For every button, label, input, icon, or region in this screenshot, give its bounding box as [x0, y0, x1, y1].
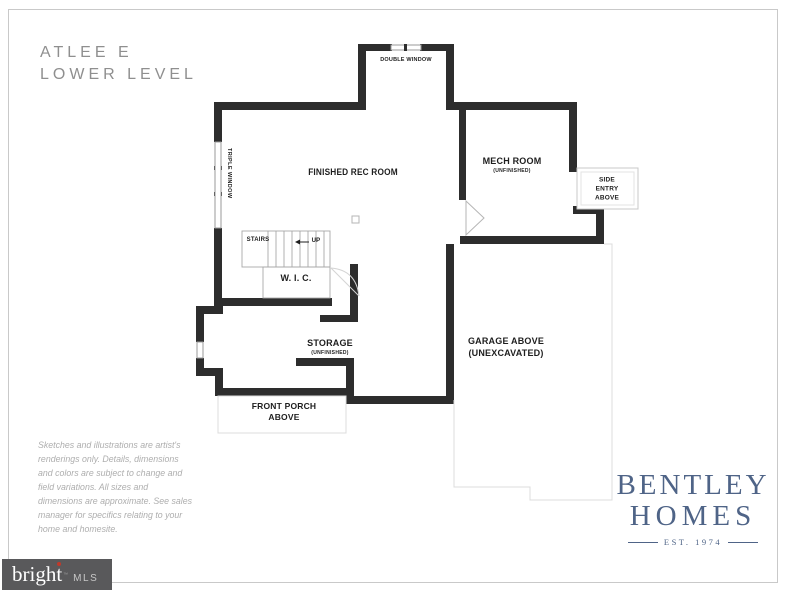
wall-porch-top	[215, 388, 353, 396]
bentley-homes-logo: BENTLEY HOMES EST. 1974	[612, 470, 774, 547]
front-porch-label: FRONT PORCH ABOVE	[246, 401, 322, 423]
bright-trademark: ™	[63, 572, 68, 578]
wall-top-left	[214, 102, 366, 110]
disclaimer-text: Sketches and illustrations are artist's …	[38, 438, 194, 536]
rec-room-label: FINISHED REC ROOM	[308, 167, 398, 177]
triple-window-label: TRIPLE WINDOW	[226, 148, 232, 228]
wall-left-upper	[214, 102, 222, 142]
logo-est-text: EST. 1974	[664, 537, 722, 547]
wall-storage-nw-horiz	[320, 315, 358, 322]
garage-outline	[454, 244, 612, 500]
garage-sublabel: (UNEXCAVATED)	[468, 348, 543, 358]
wall-rec-mech-divider	[459, 108, 466, 200]
wall-storage-nw-vert	[350, 264, 358, 322]
floor-plan-page: ATLEE E LOWER LEVEL	[0, 0, 787, 592]
column-symbol	[352, 216, 359, 223]
wall-bumpout-left-upper	[196, 306, 204, 342]
logo-rule-right	[728, 542, 758, 543]
logo-rule-left	[628, 542, 658, 543]
bright-brand-text: bright	[12, 562, 62, 586]
double-window-mullion	[404, 44, 407, 51]
triple-window-symbol	[215, 142, 221, 228]
wall-storage-sw-horiz	[296, 358, 354, 366]
wall-bay-left	[358, 44, 366, 110]
storage-sublabel: (UNFINISHED)	[311, 350, 349, 356]
wall-mech-bottom	[460, 236, 604, 244]
wall-bay-right	[446, 44, 454, 110]
bumpout-window-symbol	[197, 342, 203, 358]
stairs-up-arrow	[295, 240, 309, 245]
mls-suffix-text: MLS	[73, 573, 98, 584]
wall-storage-bottom	[346, 396, 454, 404]
rec-mech-door-swing	[466, 201, 484, 235]
wic-label: W. I. C.	[280, 273, 311, 283]
double-window-label: DOUBLE WINDOW	[380, 57, 431, 63]
wall-wic-bottom	[214, 298, 332, 306]
wall-storage-right	[446, 244, 454, 400]
mech-room-label: MECH ROOM	[483, 156, 542, 166]
up-label: UP	[312, 238, 321, 244]
side-entry-label: SIDE ENTRY ABOVE	[589, 176, 625, 203]
wall-bay-top-left	[358, 44, 392, 51]
storage-label: STORAGE	[307, 338, 353, 348]
stairs-label: STAIRS	[247, 237, 270, 243]
bright-mls-watermark: bright ™ MLS	[2, 559, 112, 590]
logo-name-line2: HOMES	[612, 501, 774, 532]
wall-left-lower	[214, 228, 222, 306]
logo-name-line1: BENTLEY	[612, 470, 774, 501]
mech-room-sublabel: (UNFINISHED)	[493, 168, 531, 174]
wall-mech-right	[569, 102, 577, 172]
bright-mls-wordmark: bright	[12, 564, 62, 585]
garage-label: GARAGE ABOVE	[468, 336, 544, 346]
